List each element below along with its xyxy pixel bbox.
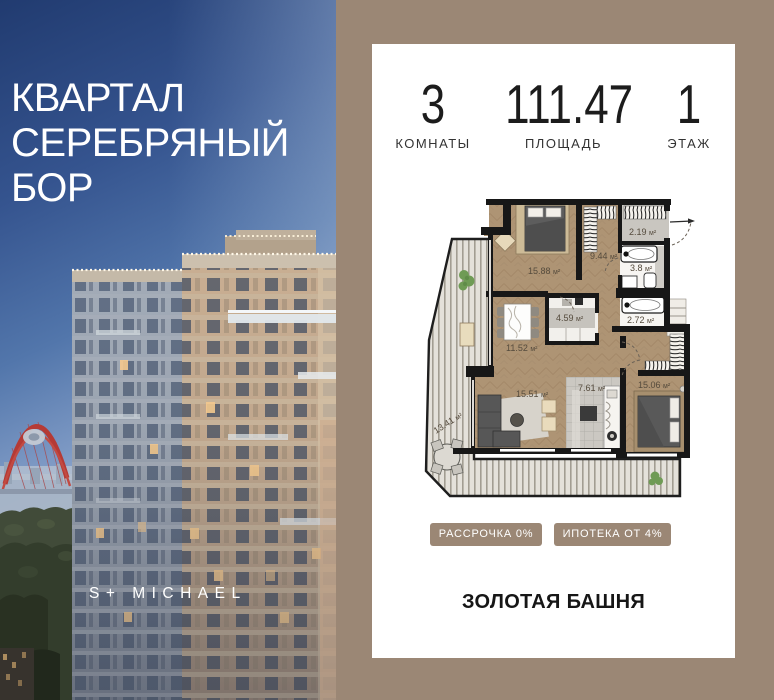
svg-text:S+ MICHAEL: S+ MICHAEL — [89, 585, 247, 602]
